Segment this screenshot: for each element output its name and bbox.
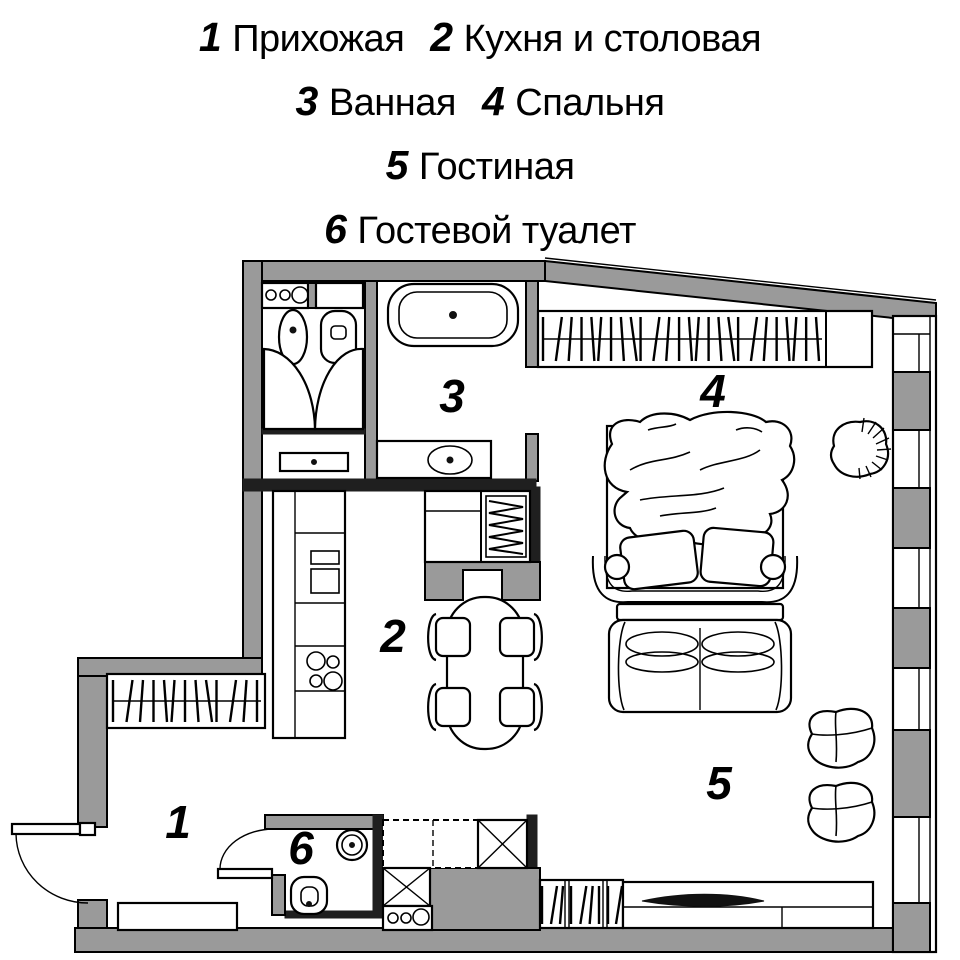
double-door-left-leaf	[264, 349, 315, 429]
lounge-armchairs	[808, 709, 874, 842]
window-pier	[893, 372, 930, 430]
vanity-drain	[447, 457, 453, 463]
dining-chair	[436, 688, 470, 726]
upper-cabinets-dashed	[383, 820, 478, 868]
chair-back	[428, 684, 436, 730]
pillow	[700, 527, 774, 587]
armchair	[808, 783, 874, 842]
room-label-6: 6	[288, 822, 314, 874]
toilet-drain	[307, 902, 312, 907]
wall-bath-block-bottom	[243, 479, 536, 491]
wall-room1-left	[78, 676, 107, 827]
wall-bath3-right-lower	[526, 434, 538, 481]
wall-bath3-right-upper	[526, 281, 538, 367]
washer-box	[316, 283, 363, 308]
utility-floor-patch	[430, 868, 540, 930]
double-door-right-leaf	[315, 349, 363, 429]
room-label-3: 3	[439, 370, 465, 422]
wall-room6-right	[373, 815, 383, 918]
wall-entry-stub	[78, 900, 107, 930]
bench	[118, 903, 237, 930]
window-column	[893, 316, 936, 952]
chair-back	[428, 614, 436, 660]
pillow	[619, 530, 699, 591]
chair-back	[534, 614, 542, 660]
closet-unit	[425, 491, 530, 562]
appliance-box	[383, 868, 430, 906]
room6-door-leaf	[218, 869, 272, 878]
entry-door-swing	[16, 834, 88, 903]
sofa	[609, 604, 791, 712]
window-pier	[893, 730, 930, 817]
entry-door-hinge	[80, 823, 95, 835]
wall-wc-bath-divider	[365, 281, 377, 481]
room-label-4: 4	[699, 365, 726, 417]
footboard-scroll	[605, 555, 629, 579]
wc-wall-stub	[308, 283, 316, 308]
footboard-scroll	[761, 555, 785, 579]
blanket	[605, 412, 794, 545]
bedroom-4	[538, 311, 891, 602]
dining-set	[428, 597, 542, 749]
media-wall	[540, 880, 873, 928]
hallway-1	[12, 674, 265, 930]
sink-drain	[350, 843, 355, 848]
toilet-room6-icon	[291, 877, 327, 914]
bathtub-drain	[450, 312, 457, 319]
wall-closet-side-stub	[530, 487, 540, 562]
window-pier	[893, 488, 930, 548]
tv-console	[623, 882, 873, 928]
wc-room	[262, 283, 365, 471]
shelf-knob	[312, 460, 317, 465]
dining-chair	[500, 618, 534, 656]
entry-door-leaf	[12, 824, 80, 834]
room-label-5: 5	[706, 757, 733, 809]
chair-back	[534, 684, 542, 730]
room-label-1: 1	[165, 796, 191, 848]
window-pier	[893, 608, 930, 668]
sofa-back-band	[617, 604, 783, 620]
wall-utility-stub	[527, 815, 537, 875]
wall-room6-top	[265, 815, 383, 829]
wall-bottom	[75, 928, 930, 952]
duct-portal	[425, 562, 540, 600]
bidet-drain	[290, 327, 296, 333]
armchair	[808, 709, 874, 768]
wall-top-block	[243, 261, 545, 281]
vanity-counter	[377, 441, 491, 478]
room-label-2: 2	[379, 610, 406, 662]
window-pier	[893, 903, 930, 952]
room6-door-swing	[220, 829, 274, 869]
floor-plan: 1 2 3 4 5 6	[0, 0, 960, 960]
wall-room6-left-stub	[272, 875, 285, 915]
wall-kitchen-left	[243, 261, 262, 676]
dining-chair	[500, 688, 534, 726]
kitchen-counter	[273, 491, 345, 738]
appliance-box	[478, 820, 527, 868]
dining-chair	[436, 618, 470, 656]
